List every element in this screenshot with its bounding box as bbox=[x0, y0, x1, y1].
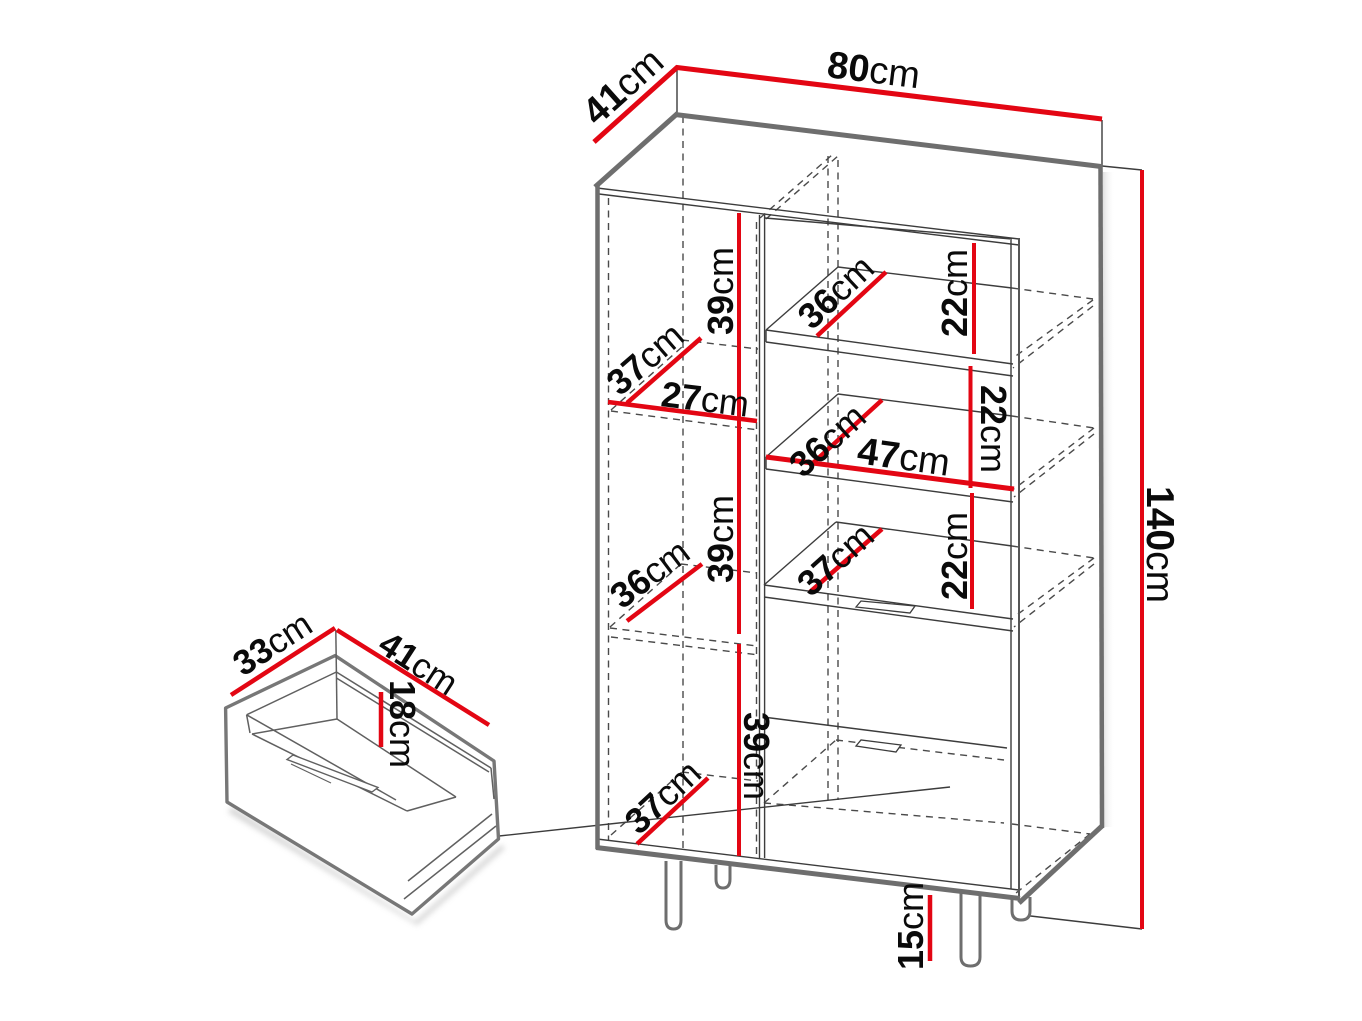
svg-text:39cm: 39cm bbox=[700, 495, 741, 583]
svg-text:15cm: 15cm bbox=[890, 882, 931, 970]
svg-text:39cm: 39cm bbox=[736, 712, 777, 800]
svg-text:140cm: 140cm bbox=[1138, 486, 1181, 603]
svg-text:39cm: 39cm bbox=[700, 247, 741, 335]
svg-text:22cm: 22cm bbox=[934, 249, 975, 337]
svg-text:22cm: 22cm bbox=[934, 512, 975, 600]
svg-text:18cm: 18cm bbox=[382, 680, 423, 768]
svg-text:22cm: 22cm bbox=[973, 385, 1014, 473]
